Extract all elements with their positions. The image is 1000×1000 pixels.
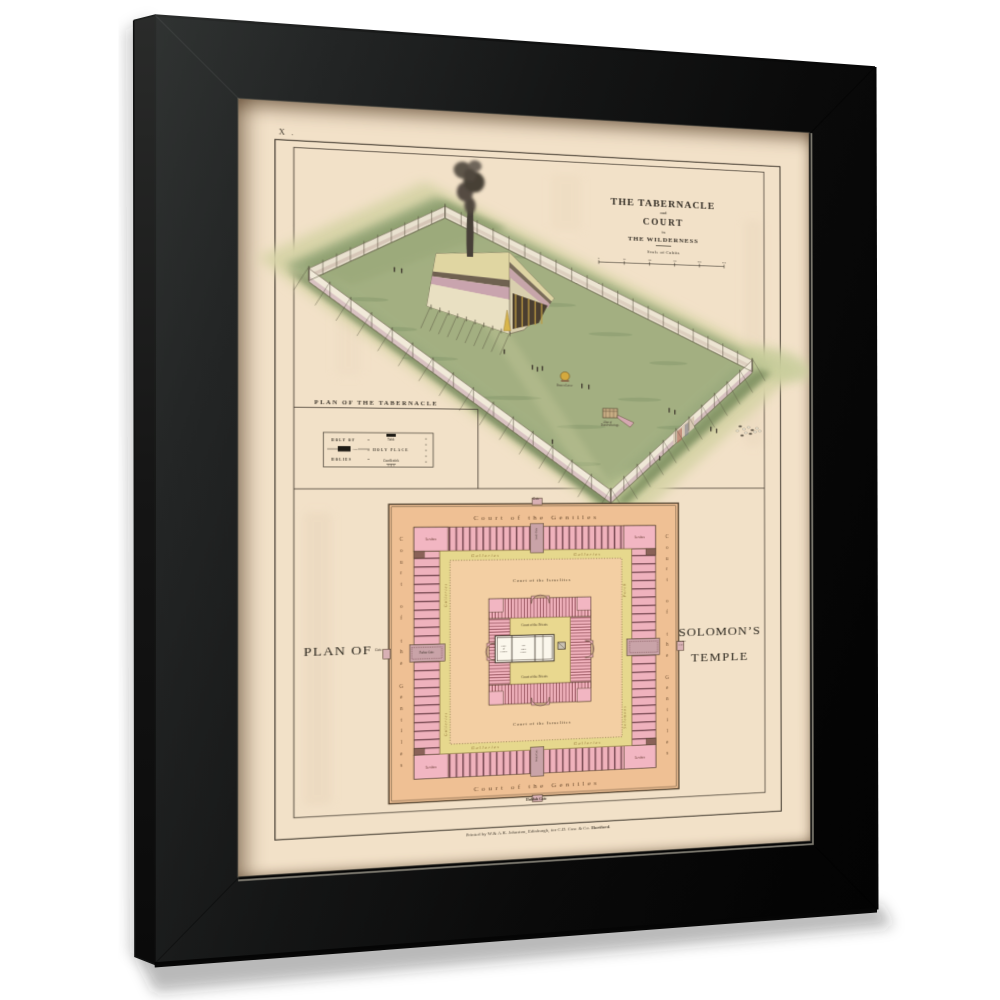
svg-text:f: f bbox=[400, 615, 402, 621]
svg-text:250: 250 bbox=[722, 262, 726, 265]
svg-text:Holies: Holies bbox=[500, 650, 507, 653]
svg-text:n: n bbox=[400, 706, 403, 711]
svg-text:Levites: Levites bbox=[635, 755, 646, 759]
svg-text:Porch: Porch bbox=[622, 583, 627, 598]
svg-text:s: s bbox=[400, 763, 402, 768]
svg-text:Table: Table bbox=[387, 438, 395, 442]
svg-text:Huldah Gate: Huldah Gate bbox=[526, 797, 547, 802]
svg-text:Scale of Cubits: Scale of Cubits bbox=[647, 251, 680, 257]
svg-text:G: G bbox=[665, 675, 669, 680]
svg-text:PLAN OF: PLAN OF bbox=[304, 643, 372, 659]
svg-text:u: u bbox=[666, 556, 669, 561]
svg-text:Court of the Gentiles: Court of the Gentiles bbox=[473, 513, 599, 522]
svg-text:Brazen Laver: Brazen Laver bbox=[557, 384, 574, 388]
svg-text:Galleries: Galleries bbox=[574, 552, 602, 557]
svg-text:HOLIES: HOLIES bbox=[331, 458, 352, 462]
svg-text:G: G bbox=[399, 684, 403, 689]
svg-text:h: h bbox=[400, 650, 403, 655]
svg-text:and: and bbox=[660, 211, 667, 216]
svg-text:Galleries: Galleries bbox=[443, 583, 448, 608]
svg-text:THE TABERNACLE: THE TABERNACLE bbox=[611, 197, 716, 212]
svg-text:f: f bbox=[666, 609, 668, 615]
svg-text:200: 200 bbox=[698, 261, 702, 264]
svg-text:C: C bbox=[399, 537, 403, 542]
svg-text:n: n bbox=[666, 697, 669, 702]
svg-text:HOLY OF: HOLY OF bbox=[331, 438, 355, 442]
svg-text:Solomons: Solomons bbox=[622, 705, 627, 728]
svg-text:Place: Place bbox=[520, 650, 527, 654]
svg-text:o: o bbox=[400, 549, 403, 554]
svg-text:Gate: Gate bbox=[533, 498, 540, 502]
svg-text:Candlestick: Candlestick bbox=[383, 460, 399, 464]
svg-text:Burnt-offerings: Burnt-offerings bbox=[601, 424, 620, 428]
svg-text:South Gate: South Gate bbox=[534, 527, 538, 539]
svg-text:X .: X . bbox=[279, 127, 296, 137]
svg-text:HOLY PLACE: HOLY PLACE bbox=[373, 448, 409, 452]
svg-text:150: 150 bbox=[673, 260, 677, 263]
svg-text:o: o bbox=[666, 599, 669, 604]
svg-text:o: o bbox=[666, 546, 669, 551]
svg-text:Court of the Priests: Court of the Priests bbox=[521, 623, 548, 627]
svg-text:h: h bbox=[666, 643, 669, 648]
svg-text:THE WILDERNESS: THE WILDERNESS bbox=[628, 235, 699, 246]
svg-text:C: C bbox=[665, 535, 669, 540]
svg-text:u: u bbox=[400, 560, 403, 565]
svg-text:Galleries: Galleries bbox=[471, 553, 500, 558]
svg-text:Gate: Gate bbox=[375, 648, 382, 652]
svg-text:Galleries: Galleries bbox=[443, 712, 448, 737]
svg-text:50: 50 bbox=[623, 258, 626, 261]
svg-text:Water Gate: Water Gate bbox=[534, 749, 538, 762]
svg-text:100: 100 bbox=[648, 259, 652, 262]
svg-text:Levites: Levites bbox=[426, 765, 437, 769]
svg-text:o: o bbox=[400, 605, 403, 610]
svg-text:TEMPLE: TEMPLE bbox=[691, 650, 749, 665]
svg-text:s: s bbox=[666, 751, 668, 756]
svg-text:in: in bbox=[662, 230, 666, 235]
svg-text:Gate: Gate bbox=[679, 643, 685, 647]
svg-text:Levites: Levites bbox=[635, 536, 646, 540]
svg-text:r: r bbox=[400, 571, 402, 576]
svg-text:PLAN OF THE TABERNACLE: PLAN OF THE TABERNACLE bbox=[314, 400, 438, 408]
svg-text:SOLOMON’S: SOLOMON’S bbox=[679, 624, 761, 640]
svg-text:COURT: COURT bbox=[643, 218, 684, 229]
svg-text:0: 0 bbox=[598, 257, 600, 260]
svg-text:Levites: Levites bbox=[425, 538, 436, 542]
svg-text:Parbar Gate: Parbar Gate bbox=[419, 651, 434, 655]
svg-text:ARK: ARK bbox=[352, 449, 358, 452]
svg-text:r: r bbox=[666, 567, 668, 572]
